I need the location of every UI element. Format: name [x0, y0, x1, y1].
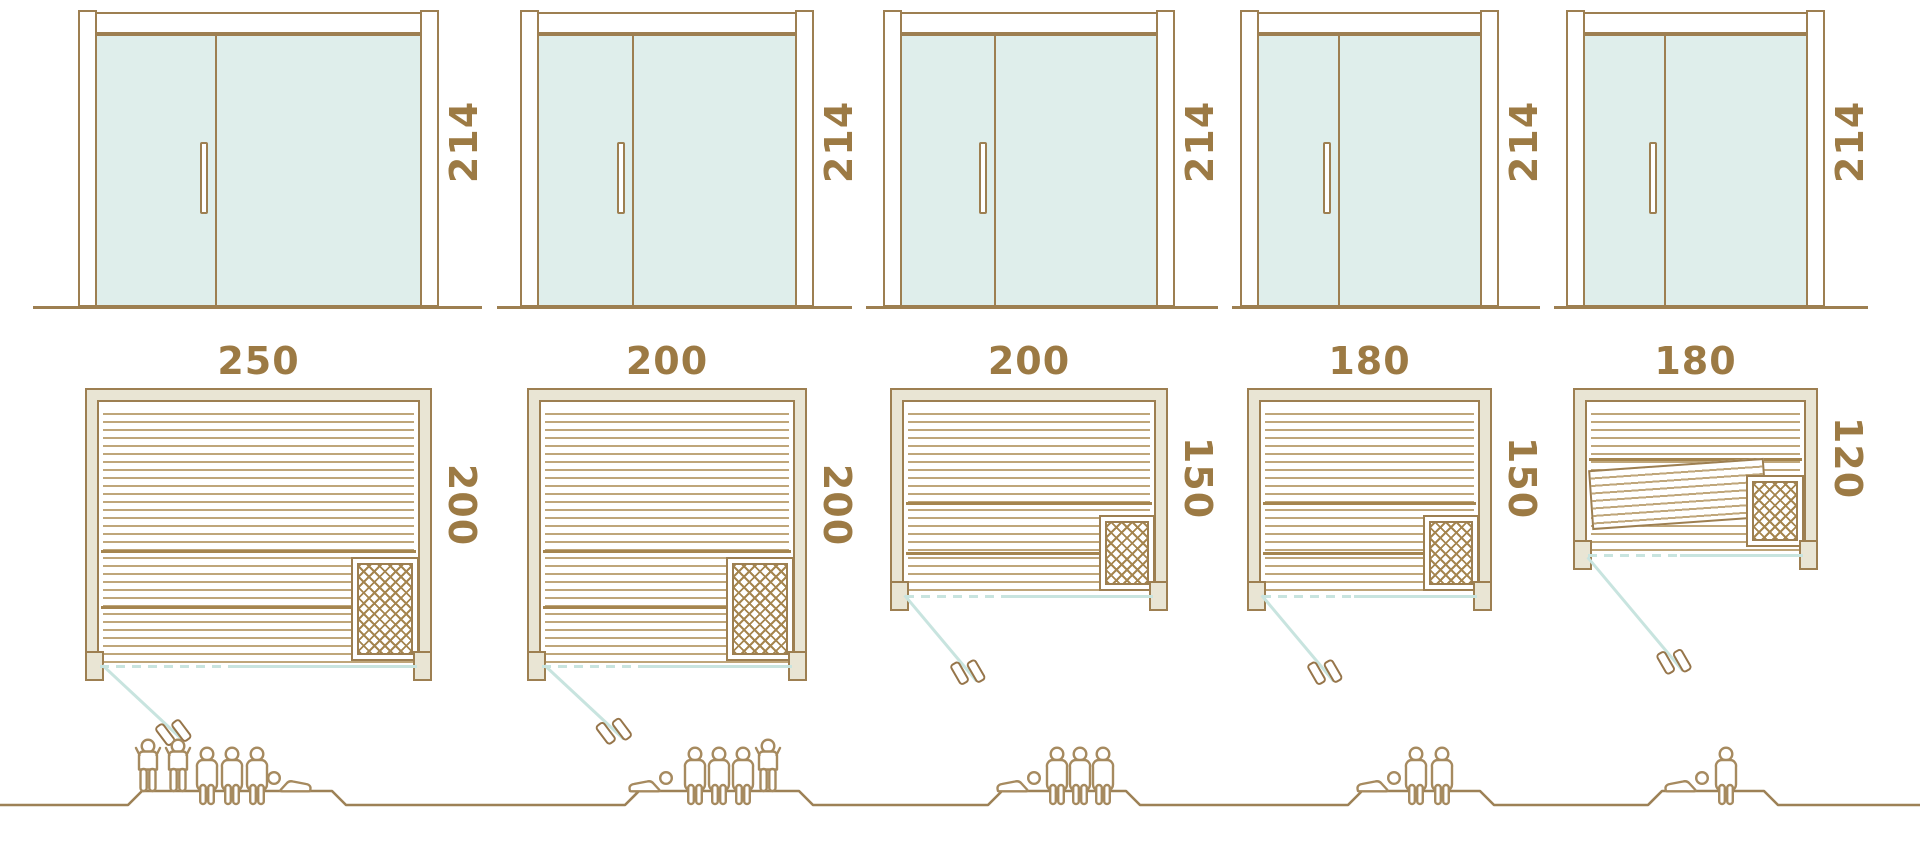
door-elevation: [883, 10, 1175, 307]
heater-grill: [732, 563, 788, 655]
ground-line-segment: [33, 306, 482, 309]
bench-edge-line: [1589, 458, 1802, 461]
glass-door-panels: [537, 34, 797, 307]
bench-edge-line: [1263, 502, 1476, 505]
door-header-bar: [95, 12, 422, 34]
sauna-size-comparison-diagram: 214 214 214 214 214 250 200 200 180 180: [0, 0, 1920, 843]
heater-grill: [1105, 521, 1149, 585]
door-handle: [1649, 142, 1657, 214]
door-divider-line: [994, 36, 996, 307]
door-opening-dashed-line: [1588, 554, 1680, 557]
open-door-swing: [1588, 557, 1683, 670]
door-header-bar: [900, 12, 1158, 34]
plan-interior: [1259, 400, 1480, 596]
bench-edge-line: [906, 502, 1152, 505]
ground-line-segment: [497, 306, 852, 309]
plan-depth-label: 150: [1497, 418, 1547, 538]
heater: [351, 557, 419, 661]
glass-front-wall-line: [1680, 554, 1803, 557]
door-frame-post-left: [1566, 10, 1585, 307]
heater: [726, 557, 794, 661]
door-divider-line: [1664, 36, 1666, 307]
people-group-2: [1666, 748, 1737, 804]
heater: [1099, 515, 1155, 591]
tilted-bench: [1588, 458, 1768, 530]
plan-width-label: 200: [890, 340, 1168, 382]
bench-edge-line: [101, 550, 416, 553]
door-opening-dashed-line: [1262, 595, 1354, 598]
door-handle: [200, 142, 208, 214]
door-opening-dashed-line: [905, 595, 1009, 598]
door-height-label: 214: [439, 82, 489, 202]
plan-width-label: 250: [85, 340, 432, 382]
door-frame-post-right: [1480, 10, 1499, 307]
door-header-bar: [537, 12, 797, 34]
door-elevation: [78, 10, 439, 307]
plan-interior: [97, 400, 420, 666]
door-height-label: 214: [1175, 82, 1225, 202]
floor-plan: [1247, 388, 1492, 596]
ground-line-segment: [1232, 306, 1540, 309]
plan-depth-label: 120: [1823, 398, 1873, 518]
glass-door-leaf-line: [904, 594, 978, 682]
floor-plan: [890, 388, 1168, 596]
plan-interior: [902, 400, 1156, 596]
glass-door-panels: [95, 34, 422, 307]
glass-front-wall-line: [1009, 595, 1153, 598]
door-height-label: 214: [1825, 82, 1875, 202]
capacity-people-row: [0, 723, 1920, 843]
door-frame-post-left: [883, 10, 902, 307]
door-handle: [979, 142, 987, 214]
ground-line-segment: [866, 306, 1218, 309]
heater-grill: [1752, 481, 1798, 541]
heater-grill: [357, 563, 413, 655]
door-frame-post-right: [1156, 10, 1175, 307]
door-header-bar: [1583, 12, 1808, 34]
people-group-4: [998, 748, 1114, 804]
door-opening-dashed-line: [542, 665, 647, 668]
door-handle: [1323, 142, 1331, 214]
door-frame-post-right: [795, 10, 814, 307]
door-frame-post-left: [1240, 10, 1259, 307]
heater: [1746, 475, 1804, 547]
door-divider-line: [1338, 36, 1340, 307]
door-height-label: 214: [1499, 82, 1549, 202]
floor-plan: [527, 388, 807, 666]
people-group-3: [1358, 748, 1453, 804]
door-height-label: 214: [814, 82, 864, 202]
plan-width-label: 200: [527, 340, 807, 382]
people-group-5: [630, 740, 781, 804]
door-divider-line: [215, 36, 217, 307]
glass-front-wall-line: [647, 665, 792, 668]
plan-depth-label: 150: [1173, 418, 1223, 538]
plan-width-label: 180: [1573, 340, 1818, 382]
plan-width-label: 180: [1247, 340, 1492, 382]
door-frame-post-right: [1806, 10, 1825, 307]
heater: [1423, 515, 1479, 591]
glass-door-leaf-line: [1587, 556, 1684, 671]
door-frame-post-left: [520, 10, 539, 307]
glass-door-panels: [1257, 34, 1482, 307]
glass-front-wall-line: [1354, 595, 1477, 598]
door-elevation: [520, 10, 814, 307]
door-frame-post-right: [420, 10, 439, 307]
glass-door-panels: [1583, 34, 1808, 307]
plan-interior: [539, 400, 795, 666]
plan-depth-label: 200: [812, 445, 862, 565]
door-opening-dashed-line: [100, 665, 230, 668]
bench-edge-line: [543, 550, 791, 553]
door-elevation: [1240, 10, 1499, 307]
glass-door-leaf-line: [1261, 594, 1335, 682]
plan-interior: [1585, 400, 1806, 555]
open-door-swing: [1262, 595, 1334, 681]
door-header-bar: [1257, 12, 1482, 34]
heater-grill: [1429, 521, 1473, 585]
glass-door-panels: [900, 34, 1158, 307]
floor-plan: [85, 388, 432, 666]
people-group-6: [136, 740, 311, 804]
door-divider-line: [632, 36, 634, 307]
door-handle: [617, 142, 625, 214]
plan-depth-label: 200: [437, 445, 487, 565]
open-door-swing: [905, 595, 977, 681]
door-elevation: [1566, 10, 1825, 307]
ground-line: [0, 791, 1920, 805]
ground-line-segment: [1554, 306, 1868, 309]
door-frame-post-left: [78, 10, 97, 307]
floor-plan: [1573, 388, 1818, 555]
glass-front-wall-line: [230, 665, 417, 668]
